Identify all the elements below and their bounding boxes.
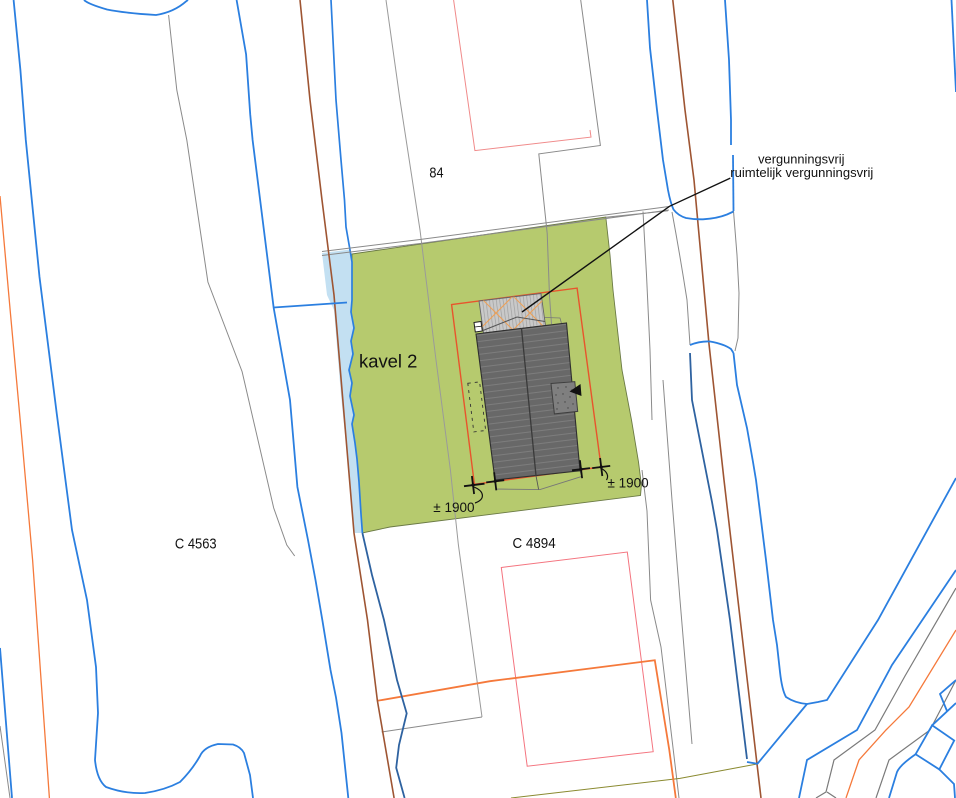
svg-text:kavel 2: kavel 2 [359, 352, 417, 372]
svg-text:84: 84 [429, 164, 443, 181]
svg-text:± 1900: ± 1900 [608, 476, 649, 491]
svg-text:ruimtelijk vergunningsvrij: ruimtelijk vergunningsvrij [730, 165, 873, 180]
svg-text:± 1900: ± 1900 [433, 500, 474, 515]
svg-text:C 4894: C 4894 [513, 535, 556, 552]
svg-text:C 4563: C 4563 [175, 536, 217, 553]
